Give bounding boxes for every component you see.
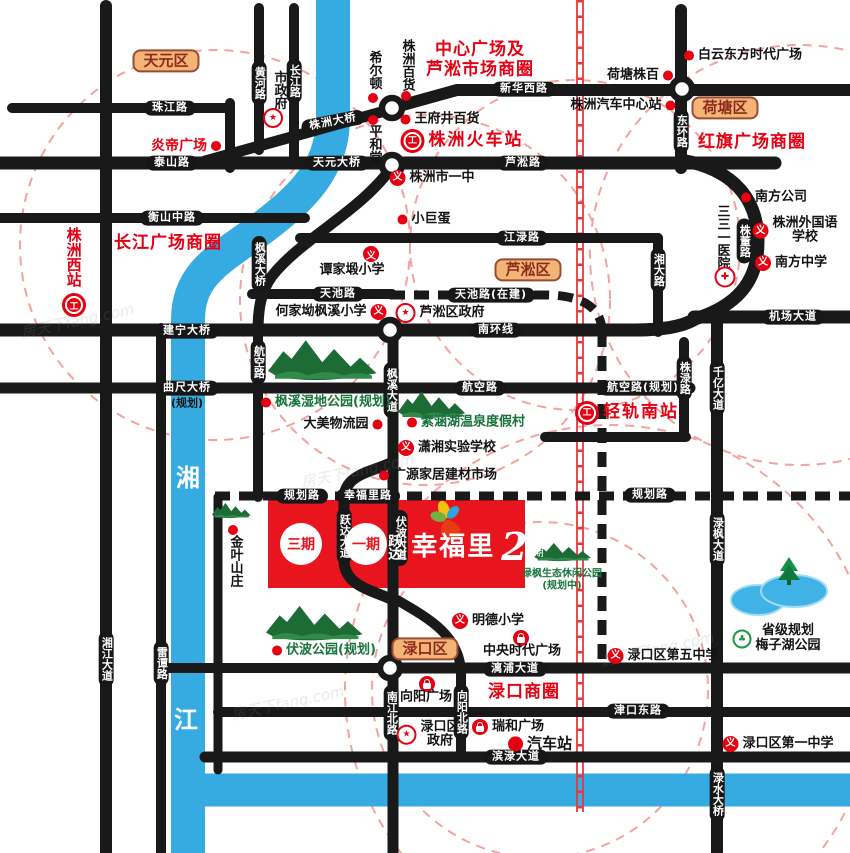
poi-label: 芦淞区政府 <box>419 306 484 321</box>
poi-zihanhu-resort: 紫涵湖温泉度假村 <box>407 416 525 431</box>
poi-lukou-no5-school: 义 渌口区第五中学 <box>607 648 718 664</box>
business-circle-center: 中心广场及 芦淞市场商圈 <box>426 40 534 79</box>
poi-auto-center-station: 株洲汽车中心站 <box>570 99 675 114</box>
road-label-lushui-bridge: 渌水大桥 <box>710 766 725 822</box>
project-logo: 跃达 幸福里 2 期 <box>384 531 543 563</box>
poi-label: 炎帝广场 <box>151 138 207 154</box>
red-dot-marker <box>407 418 417 428</box>
poi-fengxi-wetland-park: 枫溪湿地公园(规划) <box>261 396 391 411</box>
red-dot-marker <box>666 101 676 111</box>
poi-jinye-villa: 金叶山庄 <box>227 535 242 587</box>
poi-label: 渌口区第一中学 <box>742 737 833 752</box>
road-label-tianchi-underconstruction: 天池路(在建) <box>447 288 535 303</box>
government-icon: ★ <box>263 108 283 128</box>
government-icon: ★ <box>396 725 416 745</box>
red-dot-marker <box>401 91 411 101</box>
road-label-xinhua-west: 新华西路 <box>492 82 556 97</box>
poi-label: 何家坳枫溪小学 <box>275 305 366 320</box>
red-dot-marker <box>684 51 694 61</box>
road-label-qianyi: 千亿大道 <box>710 360 725 416</box>
poi-331-hospital: 三三一医院 <box>714 205 729 270</box>
district-badge-hetang: 荷塘区 <box>691 96 758 119</box>
poi-zhuzhou-department-store: 株洲百货 <box>399 39 414 91</box>
district-badge-lukou: 渌口区 <box>391 637 458 660</box>
business-circle-center-line1: 中心广场及 <box>426 40 534 60</box>
station-label: 轻轨南站 <box>603 403 679 423</box>
road-label-lufeng-ave: 渌枫大道 <box>710 511 725 567</box>
district-badge-tianyuan: 天元区 <box>132 49 199 72</box>
quchi-bridge-planned-note: (规划) <box>171 398 203 411</box>
road-label-hangkong-h: 航空路 <box>454 381 506 396</box>
business-circle-center-line2: 芦淞市场商圈 <box>426 60 534 80</box>
poi-label-line1: 渌枫生态休闲公园 <box>522 569 602 581</box>
station-zhuzhou-railway: 工 株洲火车站 <box>401 129 524 153</box>
poi-label: 南方公司 <box>755 191 807 206</box>
road-label-donghuan: 东环路 <box>674 109 689 154</box>
road-label-jianning-bridge: 建宁大桥 <box>155 324 219 339</box>
meizihu-lake <box>731 557 827 615</box>
park-icon: ♣ <box>733 630 752 649</box>
business-circle-hongqi: 红旗广场商圈 <box>698 133 806 153</box>
station-bus: 汽车站 <box>508 735 572 752</box>
poi-label: 明德小学 <box>472 614 524 629</box>
business-circle-lukou: 渌口商圈 <box>488 683 560 703</box>
poi-lufeng-eco-park: 渌枫生态休闲公园 (规划中) <box>522 569 602 592</box>
poi-label: 株洲汽车中心站 <box>570 99 661 114</box>
school-icon: 义 <box>398 440 414 456</box>
red-dot-marker <box>400 115 410 125</box>
project-brand: 跃达 <box>384 534 405 560</box>
train-station-icon: 工 <box>575 401 599 425</box>
poi-city-government: 市政府 <box>271 71 286 110</box>
project-phase1-marker: 一期 <box>345 523 387 565</box>
project-phase-number: 2 <box>501 531 527 563</box>
district-badge-lusong: 芦淞区 <box>494 258 561 281</box>
school-icon: 义 <box>607 648 623 664</box>
poi-lukou-government: ★ 渌口区 政府 <box>396 721 459 750</box>
poi-wangfujing: 王府井百货 <box>400 113 479 128</box>
poi-label: 南方中学 <box>775 256 827 271</box>
road-label-changjiang-road: 长江路 <box>287 59 302 104</box>
poi-label: 广源家居建材市场 <box>393 469 497 484</box>
road-label-xingfuli-road: 幸福里路 <box>336 489 400 504</box>
poi-foreign-language-school: 义 株洲外国语 学校 <box>752 217 837 246</box>
red-dot-marker <box>373 420 383 430</box>
poi-lusong-government: ★ 芦淞区政府 <box>395 303 484 323</box>
road-label-hangkong-v: 航空路 <box>251 340 266 385</box>
road-label-zhujiang: 珠江路 <box>144 101 196 116</box>
poi-label: 白云东方时代广场 <box>698 49 802 64</box>
road-label-guihua-west: 规划路 <box>276 489 328 504</box>
poi-lukou-no1-school: 义 渌口区第一中学 <box>722 736 833 752</box>
school-icon: 义 <box>371 304 387 320</box>
poi-hetang-zhubai: 荷塘株百 <box>607 69 673 84</box>
red-dot-marker <box>368 93 378 103</box>
poi-label: 株洲市一中 <box>409 171 474 186</box>
poi-no1-middle-school: 义 株洲市一中 <box>389 170 474 186</box>
road-label-zhudong: 株董路 <box>737 219 752 264</box>
road-label-guihua-east: 规划路 <box>624 488 676 503</box>
poi-central-times-square: 中央时代广场 <box>483 645 561 660</box>
school-icon: 义 <box>389 170 405 186</box>
poi-label-line2: (规划中) <box>522 580 602 592</box>
poi-label: 谭家塅小学 <box>319 264 384 279</box>
poi-tanjiaduan-primary: 谭家塅小学 <box>319 264 384 279</box>
poi-label: 小巨蛋 <box>411 213 450 228</box>
poi-nanfang-company: 南方公司 <box>741 191 807 206</box>
school-icon: 义 <box>363 246 379 262</box>
mall-icon <box>472 719 488 735</box>
school-icon: 义 <box>452 613 468 629</box>
road-label-fengxi-bridge: 枫溪大桥 <box>252 236 267 292</box>
government-icon: ★ <box>395 303 415 323</box>
poi-nanfang-middle-school: 义 南方中学 <box>755 255 827 271</box>
red-dot-marker <box>741 193 751 203</box>
poi-mingde-primary: 义 明德小学 <box>452 613 524 629</box>
road-label-jinkou-east: 津口东路 <box>606 704 670 719</box>
red-dot-marker <box>663 71 673 81</box>
poi-label-line2: 学校 <box>792 231 818 245</box>
poi-label: 瑞和广场 <box>492 720 544 735</box>
school-icon: 义 <box>755 255 771 271</box>
poi-damei-logistics: 大美物流园 <box>303 418 382 433</box>
station-zhuzhou-west: 株洲西站 <box>64 227 81 287</box>
road-label-jianglu: 江渌路 <box>496 231 548 246</box>
red-dot-marker <box>508 737 523 752</box>
road-label-tianchi: 天池路 <box>312 287 364 302</box>
poi-label-line2: 政府 <box>427 735 453 749</box>
poi-guangyuan-market: 广源家居建材市场 <box>379 469 497 484</box>
road-label-hengshan: 衡山中路 <box>140 211 204 226</box>
road-label-tianyuan-bridge: 天元大桥 <box>305 156 369 171</box>
poi-meizihu-park: 省级规划 梅子湖公园 <box>755 624 820 654</box>
poi-xiangyang-square: 向阳广场 <box>400 691 452 706</box>
hospital-icon: ✚ <box>715 267 736 288</box>
school-icon: 义 <box>722 736 738 752</box>
poi-xiaojudan: 小巨蛋 <box>397 213 450 228</box>
red-dot-marker <box>211 141 221 151</box>
location-map: 房天下fang.com 房天下fang.com 房天下fang.com 房天下f… <box>0 0 850 853</box>
poi-label: 王府井百货 <box>414 113 479 128</box>
poi-pinghetang: 平和堂 <box>366 125 381 164</box>
train-station-icon: 工 <box>401 129 425 153</box>
poi-baiyun-plaza: 白云东方时代广场 <box>684 49 802 64</box>
project-phase-suffix: 期 <box>534 548 544 560</box>
station-light-rail-south: 工 轻轨南站 <box>575 401 679 425</box>
train-station-icon: 工 <box>62 293 86 317</box>
road-label-zhulu: 株渌路 <box>677 356 692 401</box>
poi-fubo-park: 伏波公园(规划) <box>272 644 376 659</box>
poi-label-line2: 梅子湖公园 <box>755 639 820 654</box>
project-phase3-marker: 三期 <box>280 523 322 565</box>
poi-hilton: 希尔顿 <box>366 51 381 90</box>
road-label-nanhuan: 南环线 <box>470 323 522 338</box>
project-name: 幸福里 <box>411 533 495 563</box>
road-label-hangkong-planned: 航空路(规划) <box>599 381 687 396</box>
road-label-xiangda: 湘大路 <box>651 248 666 293</box>
road-label-huanghe: 黄河路 <box>252 61 267 106</box>
road-label-quchi-bridge: 曲尺大桥 <box>155 381 219 396</box>
river-name-jiang: 江 <box>174 707 198 735</box>
road-label-lipu: 漓浦大道 <box>483 662 547 677</box>
poi-label: 中央时代广场 <box>483 645 561 660</box>
road-label-leitan: 雷谭路 <box>154 641 169 686</box>
road-label-taishan: 泰山路 <box>146 156 198 171</box>
poi-label: 紫涵湖温泉度假村 <box>421 416 525 431</box>
road-label-lusong-road: 芦淞路 <box>497 156 549 171</box>
poi-label: 渌口区第五中学 <box>627 649 718 664</box>
poi-label: 大美物流园 <box>303 418 368 433</box>
river-name-xiang: 湘 <box>176 465 200 493</box>
poi-ruihe-square: 瑞和广场 <box>472 719 544 735</box>
red-dot-marker <box>368 115 378 125</box>
poi-label: 向阳广场 <box>400 691 452 706</box>
poi-xiaoxiang-school: 义 潇湘实验学校 <box>398 440 496 456</box>
poi-label: 伏波公园(规划) <box>286 644 376 659</box>
poi-label-line1: 省级规划 <box>755 624 820 639</box>
business-circle-changjiang: 长江广场商圈 <box>114 234 222 254</box>
red-dot-marker <box>272 646 282 656</box>
school-icon: 义 <box>752 223 768 239</box>
red-dot-marker <box>397 215 407 225</box>
poi-label: 枫溪湿地公园(规划) <box>275 396 391 411</box>
station-label: 株洲火车站 <box>429 131 524 151</box>
poi-label: 荷塘株百 <box>607 69 659 84</box>
red-dot-marker <box>261 398 271 408</box>
station-label: 汽车站 <box>527 735 572 752</box>
red-dot-marker <box>379 471 389 481</box>
road-label-xiangjiang-ave: 湘江大道 <box>99 631 114 687</box>
poi-yandi-square: 炎帝广场 <box>151 138 221 154</box>
road-label-jichang: 机场大道 <box>761 310 825 325</box>
poi-label: 潇湘实验学校 <box>418 441 496 456</box>
red-dot-marker <box>228 525 238 535</box>
poi-hejiaao-fengxi-primary: 何家坳枫溪小学 义 <box>275 304 386 320</box>
